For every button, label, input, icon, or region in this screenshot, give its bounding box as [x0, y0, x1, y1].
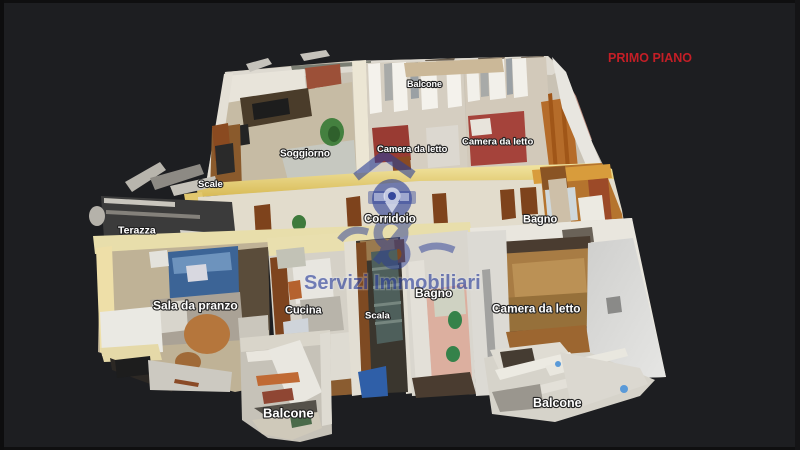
svg-text:Servizi Immobiliari: Servizi Immobiliari [304, 272, 481, 294]
svg-text:Scala: Scala [365, 311, 391, 322]
svg-text:Sala da pranzo: Sala da pranzo [153, 299, 238, 313]
svg-text:Camera da letto: Camera da letto [462, 137, 533, 148]
svg-text:Bagno: Bagno [415, 286, 452, 300]
svg-text:Camera da letto: Camera da letto [377, 143, 448, 154]
svg-text:Bagno: Bagno [523, 214, 558, 226]
svg-text:Balcone: Balcone [263, 406, 314, 421]
svg-text:Cucina: Cucina [285, 305, 323, 317]
svg-text:PRIMO PIANO: PRIMO PIANO [608, 51, 692, 65]
svg-text:Corridoio: Corridoio [364, 214, 416, 226]
svg-text:Soggiorno: Soggiorno [280, 149, 330, 160]
svg-text:Terazza: Terazza [118, 225, 156, 237]
svg-text:Camera da letto: Camera da letto [492, 302, 581, 316]
svg-text:Balcone: Balcone [407, 79, 442, 89]
svg-text:Balcone: Balcone [533, 396, 582, 410]
svg-text:Scale: Scale [198, 179, 223, 190]
